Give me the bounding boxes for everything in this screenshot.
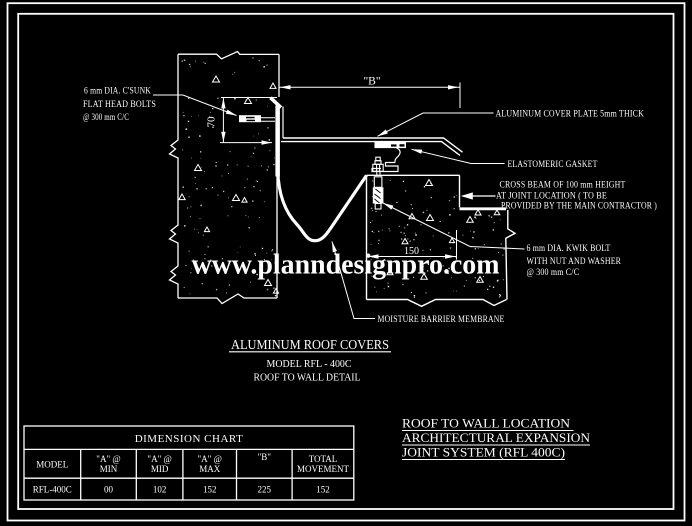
svg-text:70: 70 [206,116,218,128]
svg-text:CROSS BEAM OF 100 mm HEIGHT: CROSS BEAM OF 100 mm HEIGHT [500,180,626,190]
svg-text:152: 152 [203,485,217,495]
svg-text:PROVIDED BY THE MAIN CONTRACTO: PROVIDED BY THE MAIN CONTRACTOR ) [501,201,657,211]
svg-text:MODEL: MODEL [36,460,68,470]
svg-text:"B": "B" [363,76,380,88]
svg-text:WITH NUT AND WASHER: WITH NUT AND WASHER [527,256,622,266]
svg-text:@ 300 mm C/C: @ 300 mm C/C [527,267,580,277]
svg-text:"A" @: "A" @ [198,454,222,464]
svg-text:MOISTURE BARRIER MEMBRANE: MOISTURE BARRIER MEMBRANE [378,314,505,324]
svg-text:150: 150 [404,246,419,257]
svg-text:AT JOINT LOCATION ( TO BE: AT JOINT LOCATION ( TO BE [496,191,607,201]
svg-text:MOVEMENT: MOVEMENT [297,464,349,474]
svg-text:MODEL RFL - 400C: MODEL RFL - 400C [267,359,352,370]
svg-text:102: 102 [153,485,167,495]
svg-text:www.planndesignpro.com: www.planndesignpro.com [192,250,500,281]
svg-text:225: 225 [258,485,272,495]
svg-text:MIN: MIN [100,464,118,474]
svg-text:"A" @: "A" @ [147,454,171,464]
svg-text:"B": "B" [258,452,272,462]
svg-text:ELASTOMERIC GASKET: ELASTOMERIC GASKET [508,159,598,169]
svg-text:ALUMINUM ROOF COVERS: ALUMINUM ROOF COVERS [231,338,389,353]
svg-text:ARCHITECTURAL EXPANSION: ARCHITECTURAL EXPANSION [402,430,591,445]
svg-text:MAX: MAX [199,464,221,474]
svg-text:152: 152 [316,485,330,495]
svg-text:@ 300 mm C/C: @ 300 mm C/C [83,112,129,122]
svg-text:6 mm DIA. C'SUNK: 6 mm DIA. C'SUNK [84,86,151,96]
svg-text:6 mm DIA. KWIK BOLT: 6 mm DIA. KWIK BOLT [527,243,611,253]
svg-text:JOINT SYSTEM (RFL 400C): JOINT SYSTEM (RFL 400C) [402,445,565,460]
svg-text:ALUMINUM COVER PLATE 5mm THICK: ALUMINUM COVER PLATE 5mm THICK [496,108,645,118]
svg-text:TOTAL: TOTAL [309,454,338,464]
svg-text:00: 00 [104,485,114,495]
svg-text:MID: MID [151,464,169,474]
svg-text:FLAT HEAD BOLTS: FLAT HEAD BOLTS [83,99,156,109]
svg-text:DIMENSION CHART: DIMENSION CHART [135,433,244,445]
svg-text:RFL-400C: RFL-400C [33,485,72,495]
svg-text:ROOF TO WALL LOCATION: ROOF TO WALL LOCATION [402,416,571,431]
svg-text:ROOF TO WALL DETAIL: ROOF TO WALL DETAIL [254,373,361,384]
svg-text:"A" @: "A" @ [96,454,120,464]
